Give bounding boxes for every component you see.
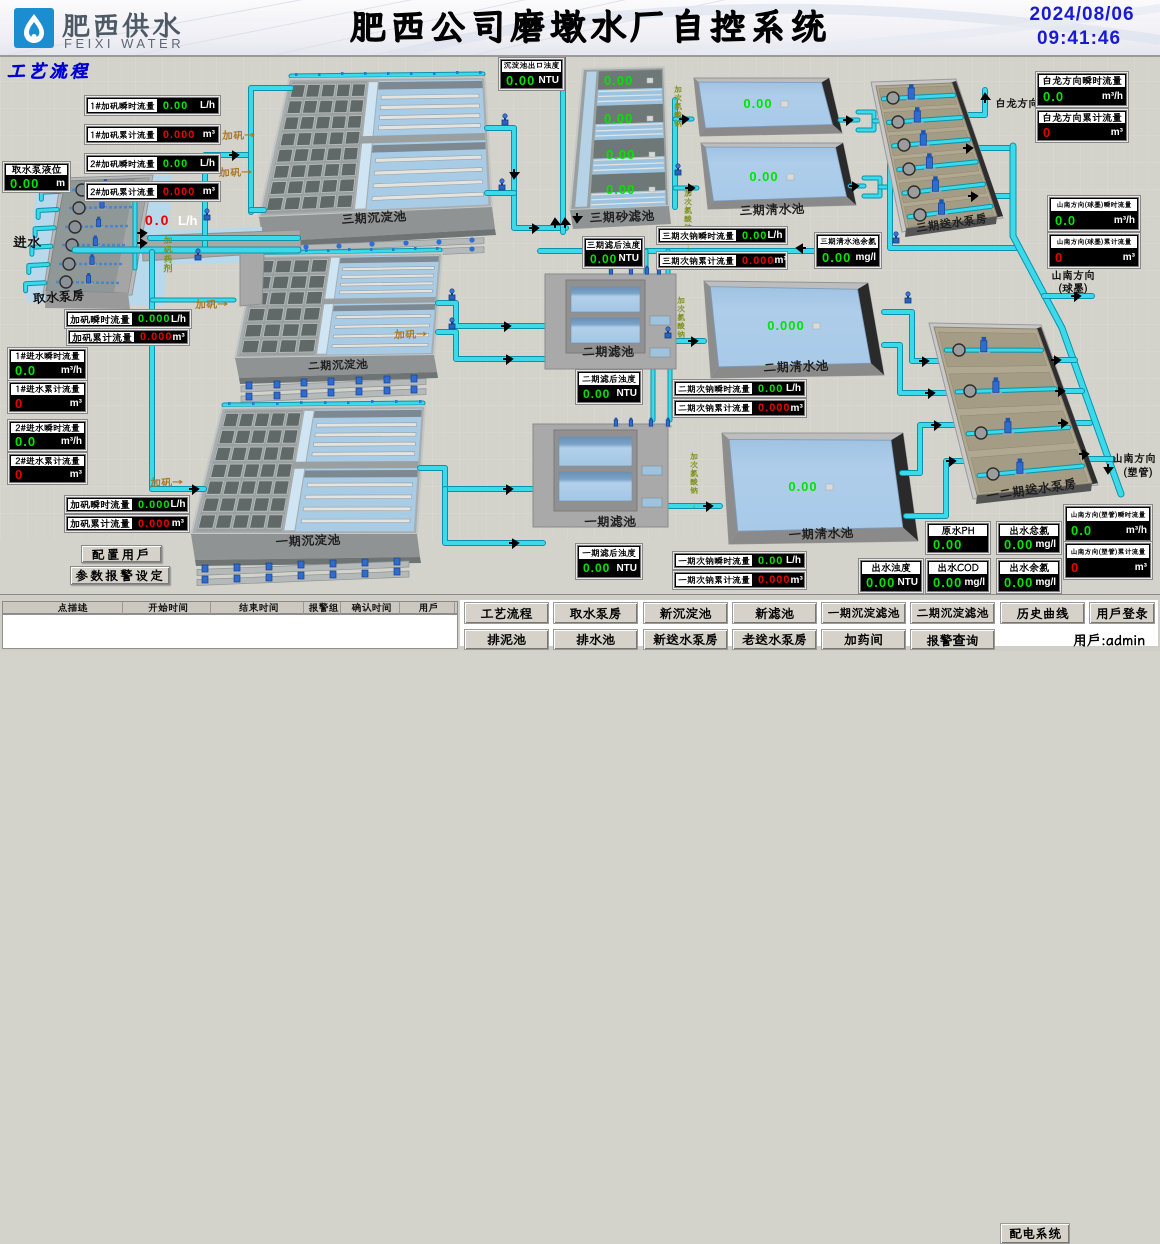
svg-text:三期清水池: 三期清水池 [739,200,805,219]
svg-text:→: → [241,166,252,180]
svg-text:→: → [172,476,183,490]
svg-text:0.00: 0.00 [604,73,633,88]
svg-text:↓: ↓ [692,498,697,511]
svg-text:白龙方向: 白龙方向 [995,97,1039,111]
svg-text:三期砂滤池: 三期砂滤池 [589,207,655,226]
svg-text:0.00: 0.00 [606,182,635,197]
svg-text:加矾: 加矾 [222,129,244,143]
svg-text:加矾: 加矾 [394,328,416,342]
svg-text:加矾: 加矾 [219,166,241,180]
svg-text:加矾: 加矾 [195,298,217,312]
svg-text:0.0: 0.0 [145,212,170,228]
svg-text:一期滤池: 一期滤池 [584,513,636,530]
svg-text:钠: 钠 [674,119,682,129]
svg-text:0.00: 0.00 [606,147,635,162]
svg-text:0.000: 0.000 [767,318,805,333]
svg-text:→: → [416,328,427,342]
svg-text:→: → [217,298,228,312]
svg-text:取水泵房: 取水泵房 [32,286,85,307]
svg-text:二期沉淀池: 二期沉淀池 [308,357,369,374]
svg-text:剂: 剂 [162,263,172,275]
svg-text:二期清水池: 二期清水池 [763,357,829,376]
svg-text:一期清水池: 一期清水池 [788,524,854,543]
svg-text:钠: 钠 [677,330,685,340]
svg-text:(塑管): (塑管) [1123,466,1153,480]
svg-text:二期滤池: 二期滤池 [582,343,634,360]
svg-text:0.00: 0.00 [749,169,778,184]
svg-text:进水: 进水 [13,233,42,251]
svg-text:三期沉淀池: 三期沉淀池 [341,207,407,227]
svg-text:0.00: 0.00 [788,479,817,494]
svg-text:钠: 钠 [690,486,698,496]
svg-text:→: → [244,129,255,143]
svg-text:一期沉淀池: 一期沉淀池 [275,531,341,550]
svg-text:0.00: 0.00 [743,96,772,111]
svg-text:0.00: 0.00 [604,111,633,126]
svg-text:山南方向: 山南方向 [1112,452,1156,466]
svg-text:(球墨): (球墨) [1058,282,1088,296]
svg-text:加矾: 加矾 [150,476,172,490]
svg-text:L/h: L/h [178,213,198,228]
svg-text:山南方向: 山南方向 [1051,269,1095,283]
